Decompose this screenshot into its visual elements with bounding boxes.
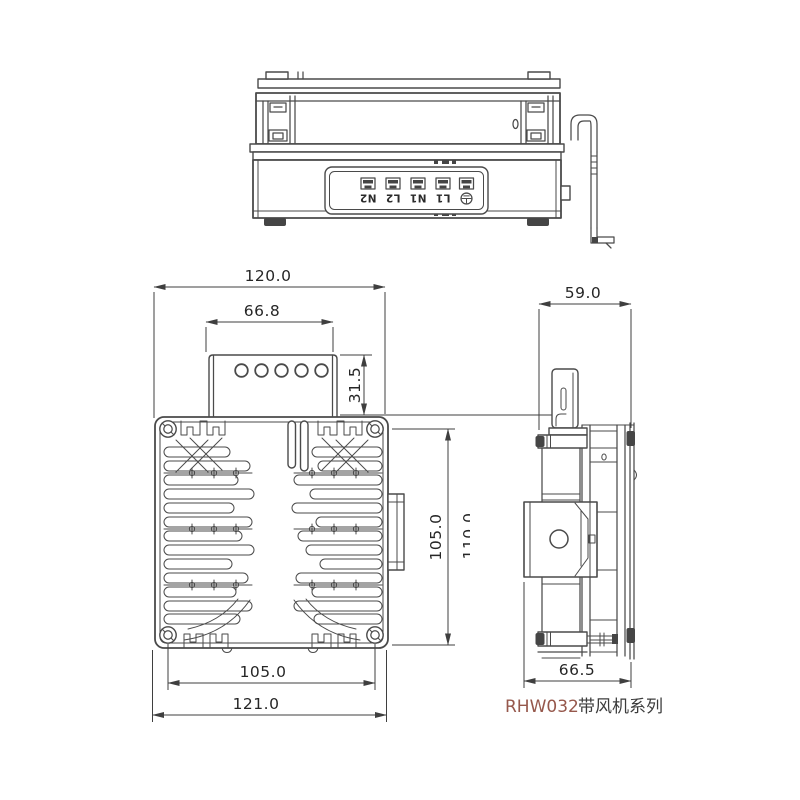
crop-mask	[470, 490, 496, 582]
caption-series: 带风机系列	[578, 697, 663, 717]
center-slot	[288, 421, 296, 468]
dim-label-66-8: 66.8	[244, 302, 281, 320]
dim-terminal-box-width: 66.8	[206, 302, 333, 352]
dim-label-121: 121.0	[233, 695, 280, 713]
din-rail-clip	[561, 115, 614, 248]
caption-model: RHW032	[505, 697, 579, 717]
dim-overall-height-clipped: 110.0	[460, 490, 496, 582]
technical-drawing: N2 L2 N1 L1	[0, 0, 800, 800]
terminal-label-l1: L1	[436, 192, 451, 204]
terminal-label-n1: N1	[409, 192, 426, 204]
rail-mount-block	[524, 502, 597, 577]
terminal-label-l2: L2	[386, 192, 401, 204]
dim-label-66-5: 66.5	[559, 661, 596, 679]
top-plate	[258, 79, 560, 88]
dim-overall-width-bottom: 121.0	[153, 650, 387, 722]
side-bottom-assembly	[536, 632, 619, 658]
dim-label-59: 59.0	[565, 284, 602, 302]
foot	[527, 218, 549, 226]
side-protrusion	[388, 494, 404, 570]
terminal-block: N2 L2 N1 L1	[325, 167, 488, 214]
center-slot	[301, 421, 309, 471]
side-terminal-box	[552, 369, 578, 428]
side-view: 59.0 66.5	[524, 284, 637, 688]
top-view: N2 L2 N1 L1	[250, 72, 614, 248]
front-terminal-box	[209, 355, 337, 418]
dim-mounting-width: 105.0	[168, 644, 375, 690]
drawing-canvas: N2 L2 N1 L1	[0, 0, 800, 800]
front-view: 120.0 66.8 31.5	[153, 267, 561, 722]
heater-body	[155, 417, 388, 648]
terminal-label-n2: N2	[359, 192, 376, 204]
side-top-assembly	[536, 428, 588, 448]
dim-label-31-5: 31.5	[346, 367, 364, 404]
caption: RHW032 带风机系列	[505, 697, 663, 717]
foot	[264, 218, 286, 226]
dim-label-120: 120.0	[245, 267, 292, 285]
dim-label-105-v: 105.0	[427, 514, 445, 561]
dim-label-105-h: 105.0	[240, 663, 287, 681]
dim-terminal-box-height: 31.5	[340, 355, 560, 415]
